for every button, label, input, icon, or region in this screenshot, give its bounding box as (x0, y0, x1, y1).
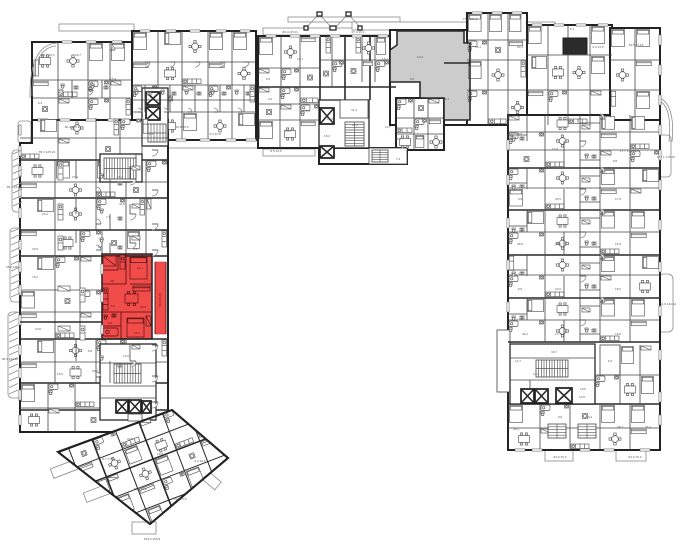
svg-text:11,8: 11,8 (119, 202, 125, 206)
svg-text:15,1: 15,1 (395, 137, 401, 141)
svg-text:159,0 155,8: 159,0 155,8 (144, 537, 161, 541)
svg-text:9,8: 9,8 (160, 381, 165, 385)
svg-text:86,4 (25,9): 86,4 (25,9) (283, 30, 298, 34)
svg-text:84,9 76,3: 84,9 76,3 (554, 455, 567, 459)
svg-text:26,8: 26,8 (517, 242, 523, 246)
svg-text:9,5: 9,5 (410, 77, 415, 81)
svg-text:18,4: 18,4 (117, 175, 123, 179)
svg-text:9,3: 9,3 (608, 359, 613, 363)
svg-text:11,4: 11,4 (351, 108, 357, 112)
svg-text:36,3: 36,3 (92, 369, 98, 373)
svg-text:25,5: 25,5 (555, 197, 561, 201)
svg-text:23,8: 23,8 (35, 327, 41, 331)
svg-text:5,5: 5,5 (108, 321, 113, 325)
svg-text:76,2: 76,2 (32, 275, 38, 279)
svg-text:9,5: 9,5 (266, 77, 271, 81)
svg-text:9,3: 9,3 (38, 101, 43, 105)
svg-text:11,4: 11,4 (352, 123, 358, 127)
svg-text:20,1: 20,1 (517, 45, 523, 49)
svg-text:55,3 125,10: 55,3 125,10 (39, 150, 56, 154)
svg-text:9,9: 9,9 (558, 415, 563, 419)
svg-text:6,5: 6,5 (111, 304, 116, 308)
svg-text:16,7 18,3: 16,7 18,3 (42, 53, 55, 57)
svg-text:16,6: 16,6 (615, 242, 621, 246)
svg-text:36,1: 36,1 (522, 332, 528, 336)
svg-text:17,6: 17,6 (552, 147, 558, 151)
svg-text:36,6 132,10: 36,6 132,10 (2, 357, 19, 361)
svg-text:15,2: 15,2 (285, 129, 291, 133)
svg-text:84,9 76,3: 84,9 76,3 (629, 455, 642, 459)
svg-text:9,5: 9,5 (518, 287, 523, 291)
svg-text:8,5 14,5: 8,5 14,5 (270, 149, 281, 153)
svg-text:27,4: 27,4 (72, 175, 78, 179)
svg-text:9,3 12,5: 9,3 12,5 (194, 459, 205, 463)
svg-text:84,9 132,12: 84,9 132,12 (660, 302, 677, 306)
svg-text:8,8: 8,8 (613, 159, 618, 163)
svg-text:15,8 15,6: 15,8 15,6 (176, 125, 189, 129)
svg-text:6,5: 6,5 (306, 109, 311, 113)
svg-text:19,8: 19,8 (157, 452, 163, 456)
svg-text:10,5: 10,5 (580, 387, 586, 391)
svg-text:14,7: 14,7 (515, 359, 521, 363)
svg-text:15,1: 15,1 (475, 45, 481, 49)
svg-text:25,3: 25,3 (140, 305, 146, 309)
svg-text:24,7: 24,7 (617, 425, 623, 429)
svg-text:7,1: 7,1 (106, 215, 111, 219)
svg-text:3,8: 3,8 (110, 279, 115, 283)
svg-text:7,3: 7,3 (396, 157, 401, 161)
svg-text:13,3: 13,3 (417, 55, 423, 59)
svg-text:33,6: 33,6 (32, 247, 38, 251)
svg-text:5,3 12,5: 5,3 12,5 (209, 132, 220, 136)
svg-text:9,5: 9,5 (518, 132, 523, 136)
svg-text:17,6: 17,6 (555, 242, 561, 246)
svg-text:15,2: 15,2 (327, 117, 333, 121)
svg-text:5,4: 5,4 (133, 247, 138, 251)
svg-text:17,7: 17,7 (555, 332, 561, 336)
svg-text:26,2: 26,2 (513, 427, 519, 431)
svg-text:177,1 179,70: 177,1 179,70 (657, 155, 675, 159)
svg-text:4,6: 4,6 (268, 97, 273, 101)
svg-text:14,1: 14,1 (137, 266, 143, 270)
svg-text:23,6: 23,6 (555, 287, 561, 291)
svg-text:17,4: 17,4 (533, 372, 539, 376)
svg-text:13,2: 13,2 (123, 354, 129, 358)
svg-text:5,8: 5,8 (88, 349, 93, 353)
svg-text:16,1: 16,1 (297, 57, 303, 61)
svg-text:79,8 65,8: 79,8 65,8 (174, 497, 187, 501)
svg-text:80,9 (5,4): 80,9 (5,4) (158, 293, 162, 306)
svg-text:24,9: 24,9 (127, 437, 133, 441)
svg-text:33,7: 33,7 (551, 350, 557, 354)
svg-text:27,4 16,4: 27,4 16,4 (352, 30, 365, 34)
svg-text:9,5: 9,5 (518, 197, 523, 201)
svg-text:16,5: 16,5 (57, 372, 63, 376)
svg-text:8,7 17,6: 8,7 17,6 (102, 457, 113, 461)
svg-text:5,9 13,5: 5,9 13,5 (592, 45, 603, 49)
svg-text:5,1: 5,1 (570, 27, 575, 31)
svg-text:16,6: 16,6 (615, 332, 621, 336)
svg-text:25,1 13,8: 25,1 13,8 (134, 487, 147, 491)
svg-text:6,7: 6,7 (445, 97, 450, 101)
svg-text:15,6: 15,6 (615, 287, 621, 291)
svg-text:15,5 17,19: 15,5 17,19 (629, 43, 644, 47)
svg-text:86,4 125,9: 86,4 125,9 (65, 125, 80, 129)
svg-text:15,3: 15,3 (147, 132, 153, 136)
svg-text:77,1 121,9: 77,1 121,9 (463, 17, 478, 21)
svg-text:6,8: 6,8 (98, 245, 103, 249)
svg-text:16,1: 16,1 (382, 57, 388, 61)
svg-text:15,4: 15,4 (110, 77, 116, 81)
svg-text:13,7: 13,7 (385, 125, 391, 129)
svg-text:55,3 134,8: 55,3 134,8 (7, 185, 22, 189)
svg-text:17,8: 17,8 (615, 197, 621, 201)
svg-text:15,2: 15,2 (324, 134, 330, 138)
svg-text:9,4: 9,4 (588, 415, 593, 419)
svg-text:10,5: 10,5 (579, 395, 585, 399)
svg-text:36,2: 36,2 (645, 425, 651, 429)
svg-text:18,7: 18,7 (134, 331, 140, 335)
svg-text:18,7: 18,7 (75, 53, 81, 57)
svg-text:36,6 128: 36,6 128 (6, 265, 18, 269)
svg-text:23,3: 23,3 (42, 212, 48, 216)
svg-text:17,7 179,70: 17,7 179,70 (620, 149, 637, 153)
